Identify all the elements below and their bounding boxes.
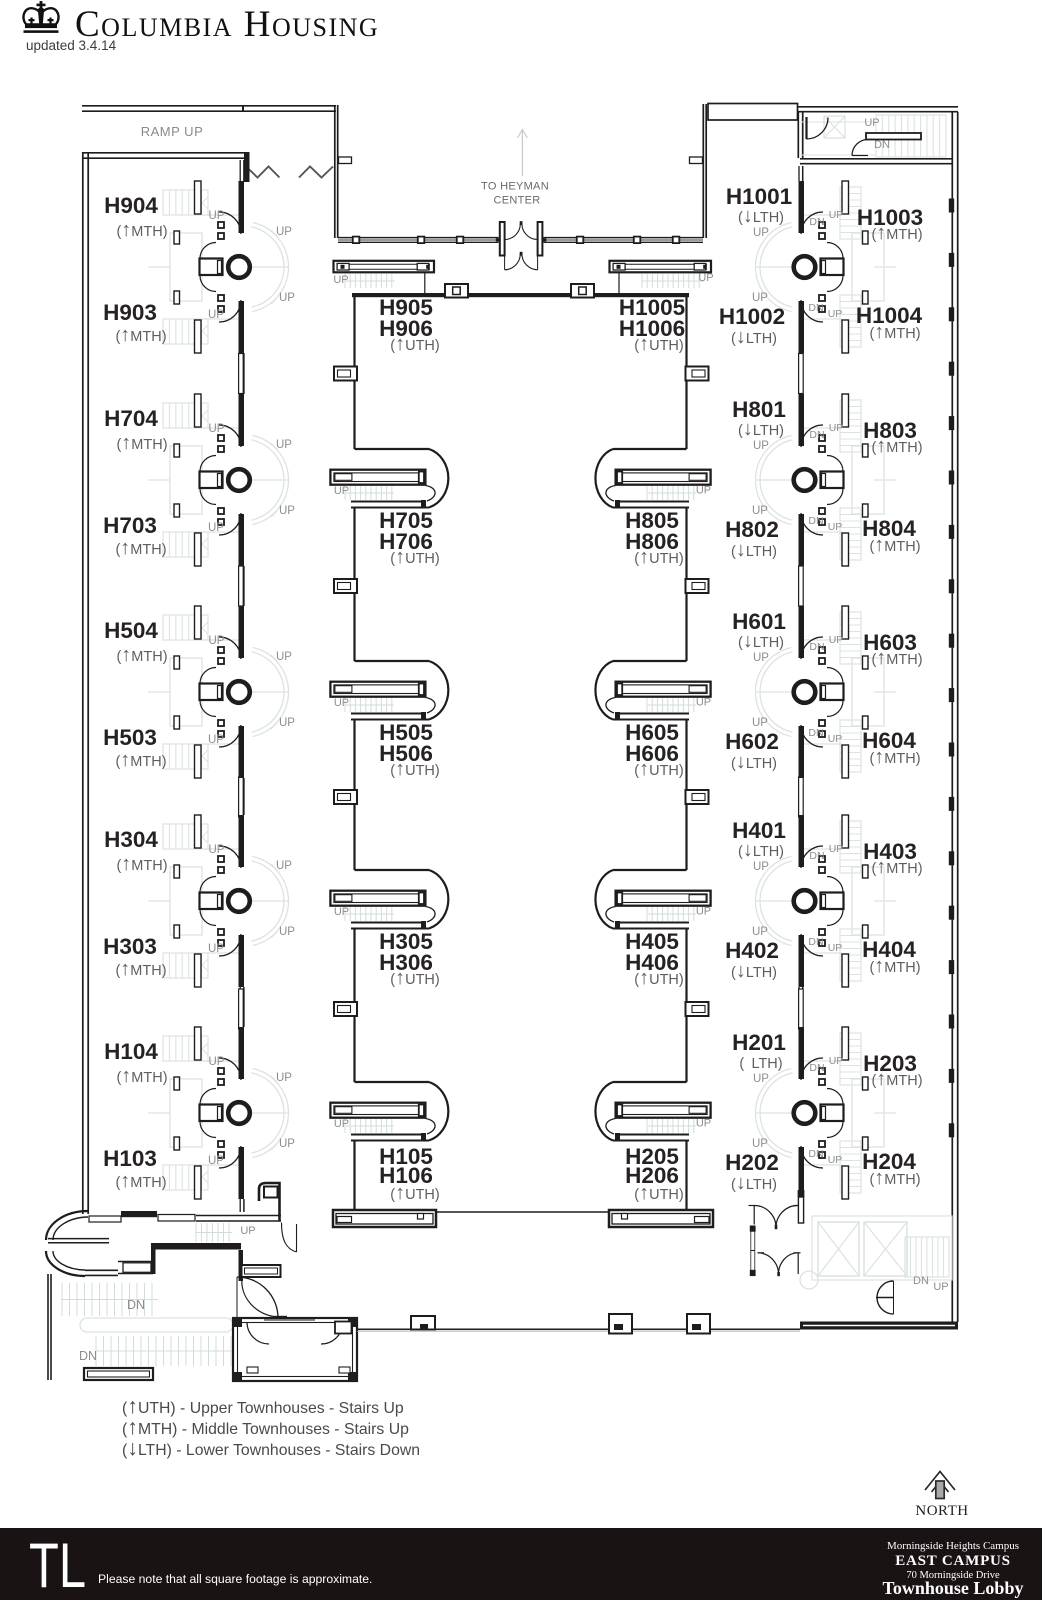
svg-text:UP: UP: [240, 1225, 255, 1237]
svg-text:TO HEYMAN: TO HEYMAN: [481, 181, 549, 193]
svg-text:UP: UP: [828, 521, 843, 533]
svg-text:UP: UP: [208, 1155, 224, 1167]
svg-text:UP: UP: [752, 505, 768, 517]
svg-text:H304: H304: [104, 827, 158, 852]
svg-text:UP: UP: [276, 651, 292, 663]
svg-text:(↑MTH): (↑MTH): [115, 749, 166, 771]
svg-text:DN: DN: [874, 139, 890, 151]
svg-text:(↑MTH) - Middle Townhouses - S: (↑MTH) - Middle Townhouses - Stairs Up: [122, 1415, 409, 1439]
svg-text:(↓LTH): (↓LTH): [731, 960, 777, 982]
svg-text:H602: H602: [725, 729, 779, 754]
svg-text:H103: H103: [103, 1146, 157, 1171]
svg-text:UP: UP: [276, 860, 292, 872]
svg-text:UP: UP: [752, 926, 768, 938]
svg-text:H801: H801: [732, 397, 786, 422]
svg-text:(↑MTH): (↑MTH): [116, 1065, 167, 1087]
svg-text:UP: UP: [933, 1281, 948, 1293]
svg-text:UP: UP: [209, 844, 225, 856]
svg-text:H104: H104: [104, 1039, 158, 1064]
svg-text:H601: H601: [732, 609, 786, 634]
svg-text:H402: H402: [725, 938, 779, 963]
svg-text:UP: UP: [753, 1073, 769, 1085]
svg-text:UP: UP: [279, 292, 295, 304]
svg-text:Columbia Housing: Columbia Housing: [75, 4, 379, 45]
svg-text:UP: UP: [753, 652, 769, 664]
svg-text:UP: UP: [828, 942, 843, 954]
svg-text:UP: UP: [753, 440, 769, 452]
svg-text:H1001: H1001: [726, 184, 792, 209]
svg-text:(↑MTH): (↑MTH): [115, 1170, 166, 1192]
svg-text:UP: UP: [829, 843, 844, 855]
svg-text:CENTER: CENTER: [493, 194, 540, 206]
svg-text:UP: UP: [334, 906, 349, 918]
svg-text:UP: UP: [209, 1056, 225, 1068]
svg-text:H404: H404: [862, 937, 916, 962]
svg-text:UP: UP: [279, 717, 295, 729]
svg-text:H106: H106: [379, 1163, 433, 1188]
svg-text:H401: H401: [732, 818, 786, 843]
svg-text:UP: UP: [753, 861, 769, 873]
svg-text:DN: DN: [808, 727, 823, 739]
svg-text:UP: UP: [208, 943, 224, 955]
svg-text:RAMP UP: RAMP UP: [141, 124, 204, 139]
svg-text:UP: UP: [828, 308, 843, 320]
svg-text:(↑MTH): (↑MTH): [115, 958, 166, 980]
svg-text:UP: UP: [696, 1118, 711, 1130]
svg-text:UP: UP: [334, 1118, 349, 1130]
svg-text:H802: H802: [725, 517, 779, 542]
svg-text:H303: H303: [103, 934, 157, 959]
svg-text:UP: UP: [279, 1138, 295, 1150]
svg-text:DN: DN: [808, 515, 823, 527]
svg-text:UP: UP: [696, 485, 711, 497]
svg-text:H704: H704: [104, 406, 158, 431]
svg-text:UP: UP: [829, 422, 844, 434]
svg-text:UP: UP: [864, 117, 879, 129]
svg-text:DN: DN: [913, 1275, 929, 1287]
svg-text:UP: UP: [696, 906, 711, 918]
svg-text:H804: H804: [862, 516, 916, 541]
svg-text:(↓LTH): (↓LTH): [731, 1172, 777, 1194]
svg-text:EAST CAMPUS: EAST CAMPUS: [895, 1553, 1011, 1569]
svg-text:H604: H604: [862, 728, 916, 753]
svg-text:H1002: H1002: [719, 304, 785, 329]
svg-text:UP: UP: [279, 926, 295, 938]
svg-text:UP: UP: [209, 635, 225, 647]
svg-text:UP: UP: [752, 717, 768, 729]
svg-text:UP: UP: [208, 309, 224, 321]
svg-text:TL: TL: [29, 1531, 86, 1600]
svg-text:UP: UP: [829, 209, 844, 221]
svg-text:H903: H903: [103, 300, 157, 325]
svg-text:UP: UP: [276, 439, 292, 451]
svg-text:UP: UP: [828, 1154, 843, 1166]
svg-text:DN: DN: [127, 1298, 145, 1312]
svg-text:UP: UP: [829, 1055, 844, 1067]
svg-text:H206: H206: [625, 1163, 679, 1188]
svg-text:DN: DN: [809, 1062, 824, 1074]
svg-text:UP: UP: [279, 505, 295, 517]
svg-text:UP: UP: [752, 292, 768, 304]
svg-text:H703: H703: [103, 513, 157, 538]
svg-text:(↑MTH): (↑MTH): [116, 432, 167, 454]
svg-text:( LTH): ( LTH): [739, 1056, 782, 1072]
svg-text:DN: DN: [808, 936, 823, 948]
svg-text:H504: H504: [104, 618, 158, 643]
svg-text:(↑MTH): (↑MTH): [116, 853, 167, 875]
svg-text:UP: UP: [828, 733, 843, 745]
svg-text:UP: UP: [209, 210, 225, 222]
svg-text:UP: UP: [753, 227, 769, 239]
svg-text:UP: UP: [698, 272, 713, 284]
svg-text:DN: DN: [79, 1349, 97, 1363]
svg-text:updated 3.4.14: updated 3.4.14: [26, 38, 117, 53]
svg-text:(↓LTH): (↓LTH): [731, 751, 777, 773]
svg-text:UP: UP: [334, 485, 349, 497]
svg-text:UP: UP: [276, 1072, 292, 1084]
svg-text:DN: DN: [809, 429, 824, 441]
svg-text:UP: UP: [208, 734, 224, 746]
svg-text:H503: H503: [103, 725, 157, 750]
svg-text:DN: DN: [809, 216, 824, 228]
svg-text:(↓LTH) - Lower Townhouses - St: (↓LTH) - Lower Townhouses - Stairs Down: [122, 1436, 420, 1460]
svg-text:UP: UP: [276, 226, 292, 238]
svg-text:H204: H204: [862, 1149, 916, 1174]
svg-text:(↓LTH): (↓LTH): [731, 326, 777, 348]
svg-text:DN: DN: [808, 1148, 823, 1160]
svg-text:UP: UP: [829, 634, 844, 646]
svg-text:Morningside Heights Campus: Morningside Heights Campus: [887, 1540, 1019, 1552]
svg-text:(↑MTH): (↑MTH): [115, 537, 166, 559]
svg-text:UP: UP: [696, 697, 711, 709]
svg-text:(↑MTH): (↑MTH): [116, 644, 167, 666]
svg-text:Please note that all square fo: Please note that all square footage is a…: [98, 1572, 372, 1586]
svg-text:H1004: H1004: [856, 303, 923, 328]
svg-text:(↓LTH): (↓LTH): [731, 539, 777, 561]
svg-text:UP: UP: [209, 423, 225, 435]
svg-text:(↑UTH) - Upper Townhouses - St: (↑UTH) - Upper Townhouses - Stairs Up: [122, 1394, 404, 1418]
svg-text:DN: DN: [809, 641, 824, 653]
svg-text:H202: H202: [725, 1150, 779, 1175]
svg-text:DN: DN: [808, 302, 823, 314]
svg-text:(↑MTH): (↑MTH): [115, 324, 166, 346]
svg-text:Townhouse Lobby: Townhouse Lobby: [883, 1578, 1024, 1598]
svg-text:H904: H904: [104, 193, 158, 218]
svg-text:UP: UP: [333, 274, 348, 286]
svg-text:DN: DN: [809, 850, 824, 862]
svg-text:NORTH: NORTH: [915, 1503, 968, 1519]
svg-text:(↑MTH): (↑MTH): [116, 219, 167, 241]
svg-text:UP: UP: [334, 697, 349, 709]
svg-text:H201: H201: [732, 1030, 786, 1055]
svg-text:UP: UP: [752, 1138, 768, 1150]
svg-text:UP: UP: [208, 522, 224, 534]
